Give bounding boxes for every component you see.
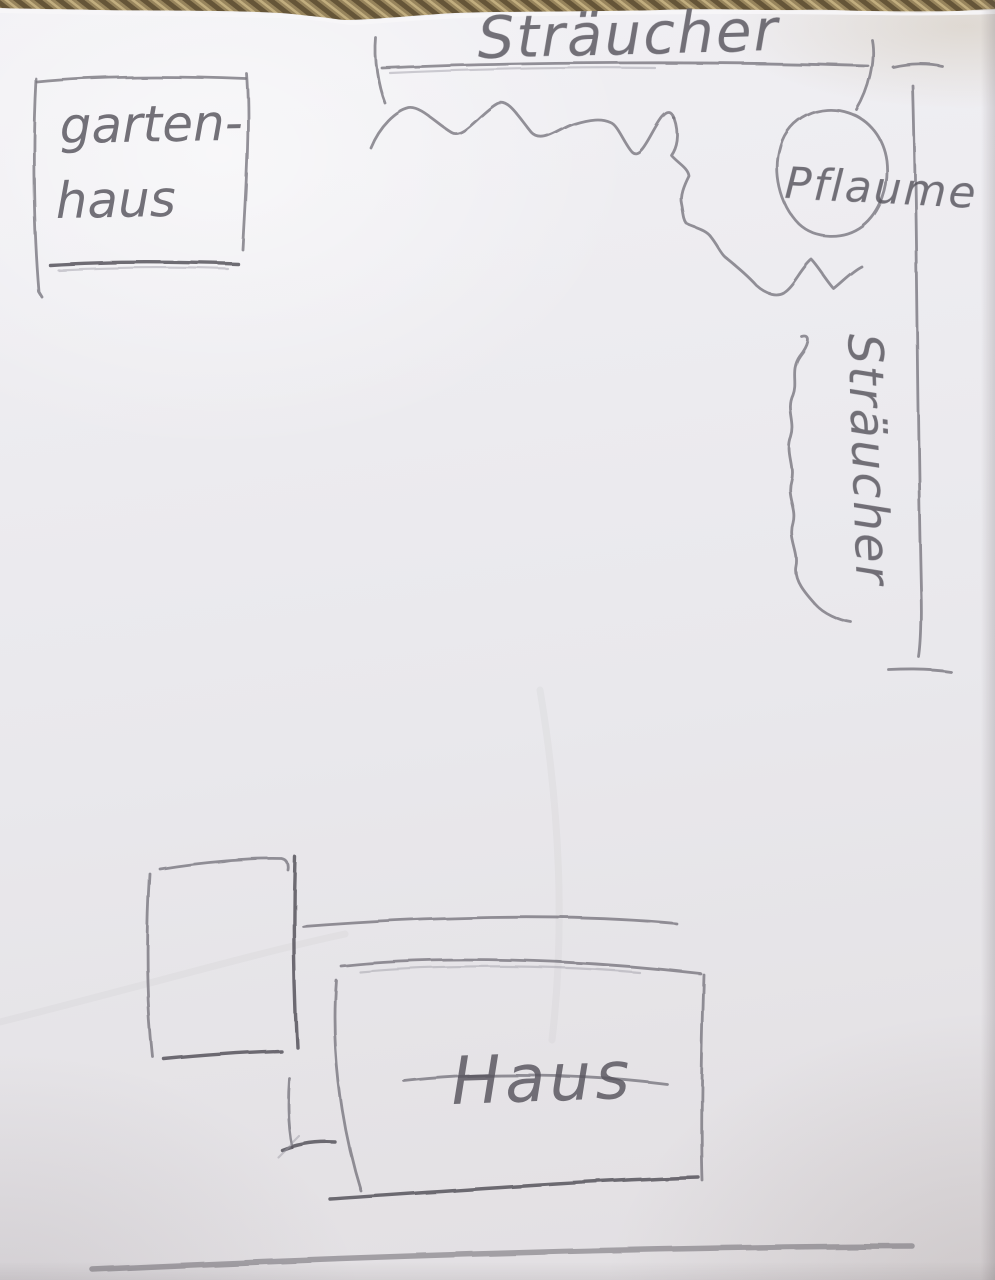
- haus-outline-bottom: [330, 1177, 698, 1199]
- boundary-line-right-end-dash: [889, 669, 951, 672]
- label-shrubs-top: Sträucher: [477, 0, 782, 72]
- label-gartenhaus-line2: haus: [55, 170, 176, 230]
- pencil-sketch-svg: Sträucher garten- haus Pflaume Sträucher…: [0, 0, 995, 1280]
- paper-creases: [0, 690, 559, 1040]
- haus-outline-right: [701, 975, 704, 1180]
- shrubs-top-squiggle: [371, 102, 674, 154]
- small-building-outline: [148, 857, 297, 1059]
- sketch-photo: Sträucher garten- haus Pflaume Sträucher…: [0, 0, 995, 1280]
- label-pflaume: Pflaume: [783, 158, 978, 219]
- underline-left-tick: [375, 38, 385, 103]
- label-gartenhaus-line1: garten-: [59, 94, 243, 155]
- corner-l-mark: [278, 1078, 335, 1157]
- connector-line: [303, 917, 676, 926]
- bottom-boundary-line: [92, 1246, 912, 1269]
- label-shrubs-right: Sträucher: [836, 332, 901, 588]
- underline-right-dash: [893, 64, 942, 67]
- label-haus: Haus: [450, 1037, 635, 1120]
- labels: Sträucher garten- haus Pflaume Sträucher…: [55, 0, 979, 1120]
- underline-right-tick: [857, 40, 873, 110]
- small-building-right-wall: [294, 857, 297, 1047]
- haus-outline-left: [335, 980, 361, 1191]
